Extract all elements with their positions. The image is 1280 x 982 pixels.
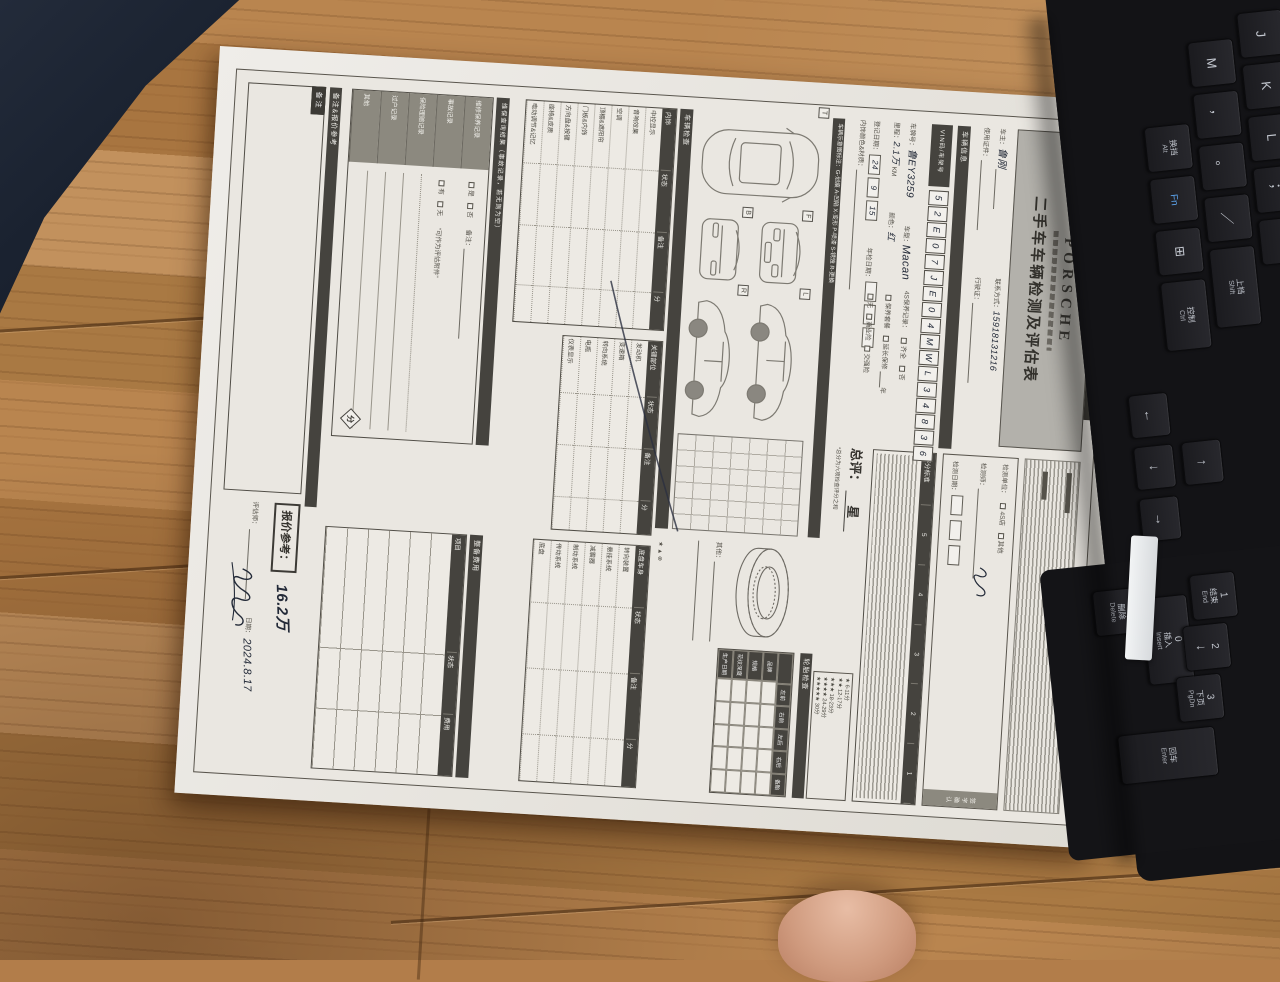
col-note: 备注 — [626, 674, 640, 740]
opt-have: 有 — [437, 188, 444, 195]
col-status: 状态 — [630, 608, 644, 674]
owner-label: 车主： — [998, 128, 1006, 148]
other-line[interactable] — [709, 561, 723, 641]
reg-date-label: 登记日期： — [871, 121, 880, 154]
query-row-header: 事故记录 — [433, 95, 465, 169]
keyboard-key[interactable]: K — [1242, 60, 1280, 111]
inspect-date-box[interactable] — [947, 545, 960, 566]
col-score: 分 — [639, 501, 650, 524]
keyboard-numpad-key[interactable]: 回车Enter — [1117, 725, 1220, 785]
opt-yes: 是 — [467, 190, 474, 197]
tire-cell[interactable] — [760, 681, 776, 705]
table-interior-title: 内饰 — [661, 109, 675, 171]
keyboard-numpad-body — [1039, 536, 1280, 861]
vin-char-box[interactable]: E — [922, 286, 943, 302]
tire-row-header: 生产日期 — [717, 649, 734, 679]
col-status: 状态 — [443, 652, 457, 715]
col-cost: 费用 — [439, 714, 453, 776]
tire-cell[interactable] — [726, 747, 742, 771]
insurance-option: 商业险 — [864, 321, 872, 341]
opt-complete: 齐全 — [899, 346, 907, 359]
car-right-view — [675, 293, 744, 424]
tire-row-header: 花纹深度 — [732, 650, 749, 680]
tire-cell[interactable] — [744, 703, 760, 727]
query-note-label: 备注： — [464, 229, 472, 249]
inspector-block: 检测单位： 4S店 其他 检测师： 检测日期： 签字确认 — [921, 453, 1018, 810]
col-score: 分 — [624, 740, 636, 767]
checkbox-complete[interactable] — [901, 338, 907, 344]
tire-cell[interactable] — [759, 704, 775, 728]
other-label: 其他： — [714, 542, 722, 562]
fingertip — [778, 890, 916, 982]
checkbox-insurance[interactable] — [864, 345, 870, 351]
tire-cell[interactable] — [710, 769, 726, 793]
option-other: 其他 — [996, 540, 1004, 553]
mileage-label: 里程： — [892, 122, 900, 142]
tire-row-header: 规格 — [747, 651, 764, 681]
phone-handwriting[interactable]: 15918131216 — [988, 311, 1002, 372]
table-key-parts: 关键部位 状态 备注 分 发动机 变速箱 转向系统 电瓶 仪表显 — [551, 335, 664, 536]
inspect-date-box[interactable] — [949, 520, 962, 541]
tire-cell[interactable] — [743, 725, 759, 749]
tire-col-header: 左后 — [773, 728, 789, 751]
insp-date-label: 年检日期： — [863, 247, 872, 280]
color-label: 颜色： — [886, 212, 894, 232]
checkbox-package[interactable] — [885, 295, 891, 301]
interior-label: 内饰颜色&材质： — [856, 120, 866, 170]
checkbox-have[interactable] — [438, 180, 444, 186]
view-label-left: L — [799, 288, 811, 300]
overall-label: 总评： — [847, 448, 864, 488]
tire-cell[interactable] — [729, 702, 745, 726]
status-symbols: ★ ▲ ⊗ — [656, 541, 664, 561]
keyboard: JKL；‘ M，。／上档Shift 换挡AltFn⊞控制Ctrl ↑←↓→ 0插… — [1048, 0, 1280, 852]
rating-level: 3 — [911, 625, 922, 685]
inspect-date-box[interactable] — [950, 495, 963, 516]
tire-cell[interactable] — [725, 770, 741, 794]
tire-cell[interactable] — [714, 701, 730, 725]
reg-date-box[interactable]: 9 — [867, 178, 880, 199]
car-back-view — [688, 216, 749, 283]
insurance-option: 交强险 — [862, 353, 870, 373]
keyboard-numpad-key[interactable]: 1结束End — [1189, 571, 1240, 622]
col-note: 备注 — [641, 449, 654, 502]
keyboard-key[interactable]: 上档Shift — [1209, 245, 1263, 329]
keyboard-arrow-key[interactable]: ↓ — [1133, 443, 1177, 491]
quote-block: 报价参考： 16.2万 评估师： 日期： 2024.8.17 — [207, 500, 301, 767]
vin-char-box[interactable]: M — [919, 334, 940, 350]
keyboard-numpad-key[interactable]: 2↓ — [1182, 622, 1233, 673]
tire-col-header: 右前 — [774, 706, 790, 729]
quote-label: 报价参考： — [271, 503, 301, 573]
opt-year-suffix: 年 — [879, 387, 886, 394]
query-row-header: 保险理赔记录 — [405, 93, 437, 167]
star-scale-box: ★ 6-11分★★ 12-17分★★★ 18-23分★★★★ 24-29分★★★… — [806, 671, 854, 801]
view-label-right: R — [737, 285, 749, 297]
query-attach-note: “可作为评估附件” — [432, 228, 442, 278]
tire-cell[interactable] — [730, 679, 746, 703]
keyboard-arrow-key[interactable]: ↑ — [1181, 438, 1225, 486]
tire-cell[interactable] — [715, 678, 731, 702]
rating-level: 4 — [915, 565, 926, 625]
table-key-parts-title: 关键部位 — [647, 341, 660, 398]
checkbox-no2[interactable] — [467, 203, 473, 209]
checkbox-4s[interactable] — [1000, 503, 1006, 509]
vin-char-box[interactable]: 4 — [920, 318, 941, 334]
tire-cell[interactable] — [756, 749, 772, 773]
opt-no2: 否 — [465, 211, 472, 218]
query-row-header: 过户记录 — [377, 91, 409, 165]
view-label-front: F — [802, 210, 814, 222]
keyboard-key[interactable]: L — [1247, 112, 1280, 163]
mileage-unit: KM — [890, 166, 898, 176]
col-note: 备注 — [653, 233, 667, 293]
keyboard-key[interactable]: J — [1236, 9, 1280, 60]
model-label: 车型： — [902, 225, 910, 245]
tire-col-header: 备胎 — [770, 773, 786, 796]
table-interior: 内饰 状态 备注 分 中控显示 音响效果 空调 顶棚&遮阳帘 门 — [512, 99, 677, 331]
tire-cell[interactable] — [713, 724, 729, 748]
vin-char-box[interactable]: W — [918, 350, 939, 366]
rating-level: 2 — [908, 684, 919, 744]
date-label: 日期： — [244, 617, 252, 637]
view-label-back: B — [742, 207, 754, 219]
checkbox-insurance[interactable] — [867, 293, 873, 299]
license-label: 行驶证： — [972, 277, 981, 303]
opt-package: 保养套餐 — [882, 303, 891, 329]
keyboard-key[interactable]: Fn — [1149, 175, 1200, 226]
vin-char-box[interactable]: L — [917, 366, 938, 382]
id-label: 使用证件： — [981, 127, 990, 160]
option-4s: 4S店 — [998, 511, 1006, 526]
tire-row-header: 品牌 — [762, 652, 779, 682]
opt-no: 否 — [897, 374, 904, 381]
col-status: 状态 — [644, 397, 657, 450]
checkbox-other-unit[interactable] — [998, 532, 1004, 538]
vin-char-box[interactable]: 4 — [915, 398, 936, 414]
id-line[interactable] — [977, 160, 990, 230]
tire-table: 左前右前左后右后备胎 品牌 规格 花纹深度 — [709, 648, 795, 797]
car-left-view — [737, 297, 806, 428]
keyboard-key[interactable]: ／ — [1203, 193, 1254, 244]
tire-cell[interactable] — [758, 726, 774, 750]
plate-handwriting[interactable]: 鲁EY3259 — [904, 149, 918, 199]
query-row-header: 维修保养记录 — [460, 97, 492, 171]
inspector-label: 检测师： — [978, 463, 987, 489]
mileage-handwriting[interactable]: 2.1万 — [891, 141, 902, 165]
reg-date-box[interactable]: 24 — [868, 155, 881, 176]
vin-label: VIN码/车架号 — [928, 124, 953, 187]
vin-char-box[interactable]: E — [926, 222, 947, 238]
tire-col-header: 左前 — [775, 684, 791, 707]
checkbox-yes[interactable] — [468, 182, 474, 188]
col-score: 分 — [652, 292, 663, 317]
defect-grid — [672, 433, 804, 537]
car-top-view — [691, 114, 825, 214]
vin-char-box[interactable]: 3 — [913, 430, 934, 446]
paper-sheet: PORSCHE 二手车车辆检测及评估表 检测单位： 4S店 其他 检测师： 检测… — [174, 46, 1134, 849]
recondition-table: 项目 状态 费用 — [311, 526, 468, 777]
inspect-date-label: 检测日期： — [950, 461, 959, 494]
checkbox-insurance[interactable] — [866, 313, 872, 319]
keyboard-key[interactable]: ； — [1252, 164, 1280, 215]
tire-col-header: 右后 — [771, 751, 787, 774]
checkbox-warranty[interactable] — [883, 335, 889, 341]
unit-label: 检测单位： — [999, 464, 1008, 497]
tire-cell[interactable] — [711, 746, 727, 770]
vin-char-box[interactable]: 7 — [924, 254, 945, 270]
assessor-label: 评估师： — [250, 501, 259, 527]
plate-label: 车牌号： — [908, 123, 917, 149]
tire-cell[interactable] — [740, 771, 756, 795]
vin-char-box[interactable]: 3 — [916, 382, 937, 398]
maint-label: 4S保养记录： — [900, 291, 909, 332]
keyboard-key[interactable]: 控制Ctrl — [1160, 278, 1213, 352]
license-line[interactable] — [967, 303, 981, 383]
date-handwriting[interactable]: 2024.8.17 — [241, 638, 253, 692]
keyboard-arrow-cluster: ↑←↓→ — [1106, 387, 1233, 568]
col-status: 状态 — [657, 171, 671, 233]
vin-char-box[interactable]: 0 — [925, 238, 946, 254]
rating-level: 1 — [904, 744, 915, 804]
vin-char-box[interactable]: 2 — [927, 206, 948, 222]
insurance-option: 无 — [866, 301, 873, 308]
tire-cell[interactable] — [745, 680, 761, 704]
phone-label: 联系方式： — [992, 278, 1001, 311]
vin-char-box[interactable]: 6 — [912, 446, 933, 462]
query-notes-lines[interactable] — [350, 171, 422, 432]
notes-label: 备注 — [311, 86, 327, 115]
checkbox-no[interactable] — [899, 366, 905, 372]
reg-date-box[interactable]: 15 — [866, 201, 879, 222]
inspector-sign-line[interactable] — [972, 489, 986, 579]
keyboard-key[interactable]: 换挡Alt — [1144, 123, 1195, 174]
model-handwriting[interactable]: Macan — [899, 245, 911, 281]
opt-warranty: 延长保修 — [880, 343, 889, 369]
tire-cell[interactable] — [728, 724, 744, 748]
keyboard-arrow-key[interactable]: ← — [1127, 392, 1171, 440]
tire-cell[interactable] — [741, 748, 757, 772]
color-handwriting[interactable]: 红 — [886, 231, 897, 241]
tire-cell[interactable] — [755, 772, 771, 796]
keyboard-key[interactable]: ⊞ — [1154, 226, 1205, 277]
vin-char-box[interactable]: 0 — [921, 302, 942, 318]
checkbox-none[interactable] — [437, 201, 443, 207]
table-chassis-body: 底盘车身 状态 备注 分 转向装置 悬挂系统 减震器 制动系统 — [518, 539, 651, 789]
table-chassis-title: 底盘车身 — [634, 546, 648, 608]
assessor-sign-line[interactable] — [245, 529, 258, 599]
query-table: 维修保养记录事故记录保险理赔记录过户记录其他 是 否 备注： 有 无 “可作为评… — [331, 89, 494, 445]
recondition-grid[interactable] — [312, 527, 452, 775]
keyboard-key[interactable]: ‘ — [1258, 215, 1280, 266]
keyboard-key[interactable]: 。 — [1198, 141, 1249, 192]
vin-char-box[interactable]: J — [923, 270, 944, 286]
view-label-top: T — [818, 107, 830, 119]
query-row-header: 其他 — [349, 90, 381, 164]
rating-level: 5 — [919, 505, 930, 565]
inspection-form: PORSCHE 二手车车辆检测及评估表 检测单位： 4S店 其他 检测师： 检测… — [193, 69, 1114, 826]
tire-illustration — [722, 540, 797, 644]
vin-char-box[interactable]: 5 — [928, 190, 949, 206]
vin-char-box[interactable]: 8 — [914, 414, 935, 430]
keyboard-numpad-key[interactable]: 3下页PgDn — [1175, 673, 1226, 724]
car-front-view — [748, 219, 809, 286]
keyboard-key[interactable]: M — [1187, 38, 1238, 89]
confirm-strip: 签字确认 — [922, 789, 997, 809]
opt-none: 无 — [436, 209, 443, 216]
owner-name-handwriting[interactable]: 鲁刚 — [995, 148, 1007, 170]
keyboard-key[interactable]: ， — [1192, 90, 1243, 141]
quote-handwriting[interactable]: 16.2万 — [272, 585, 294, 632]
overall-value[interactable]: 星 — [843, 491, 861, 533]
